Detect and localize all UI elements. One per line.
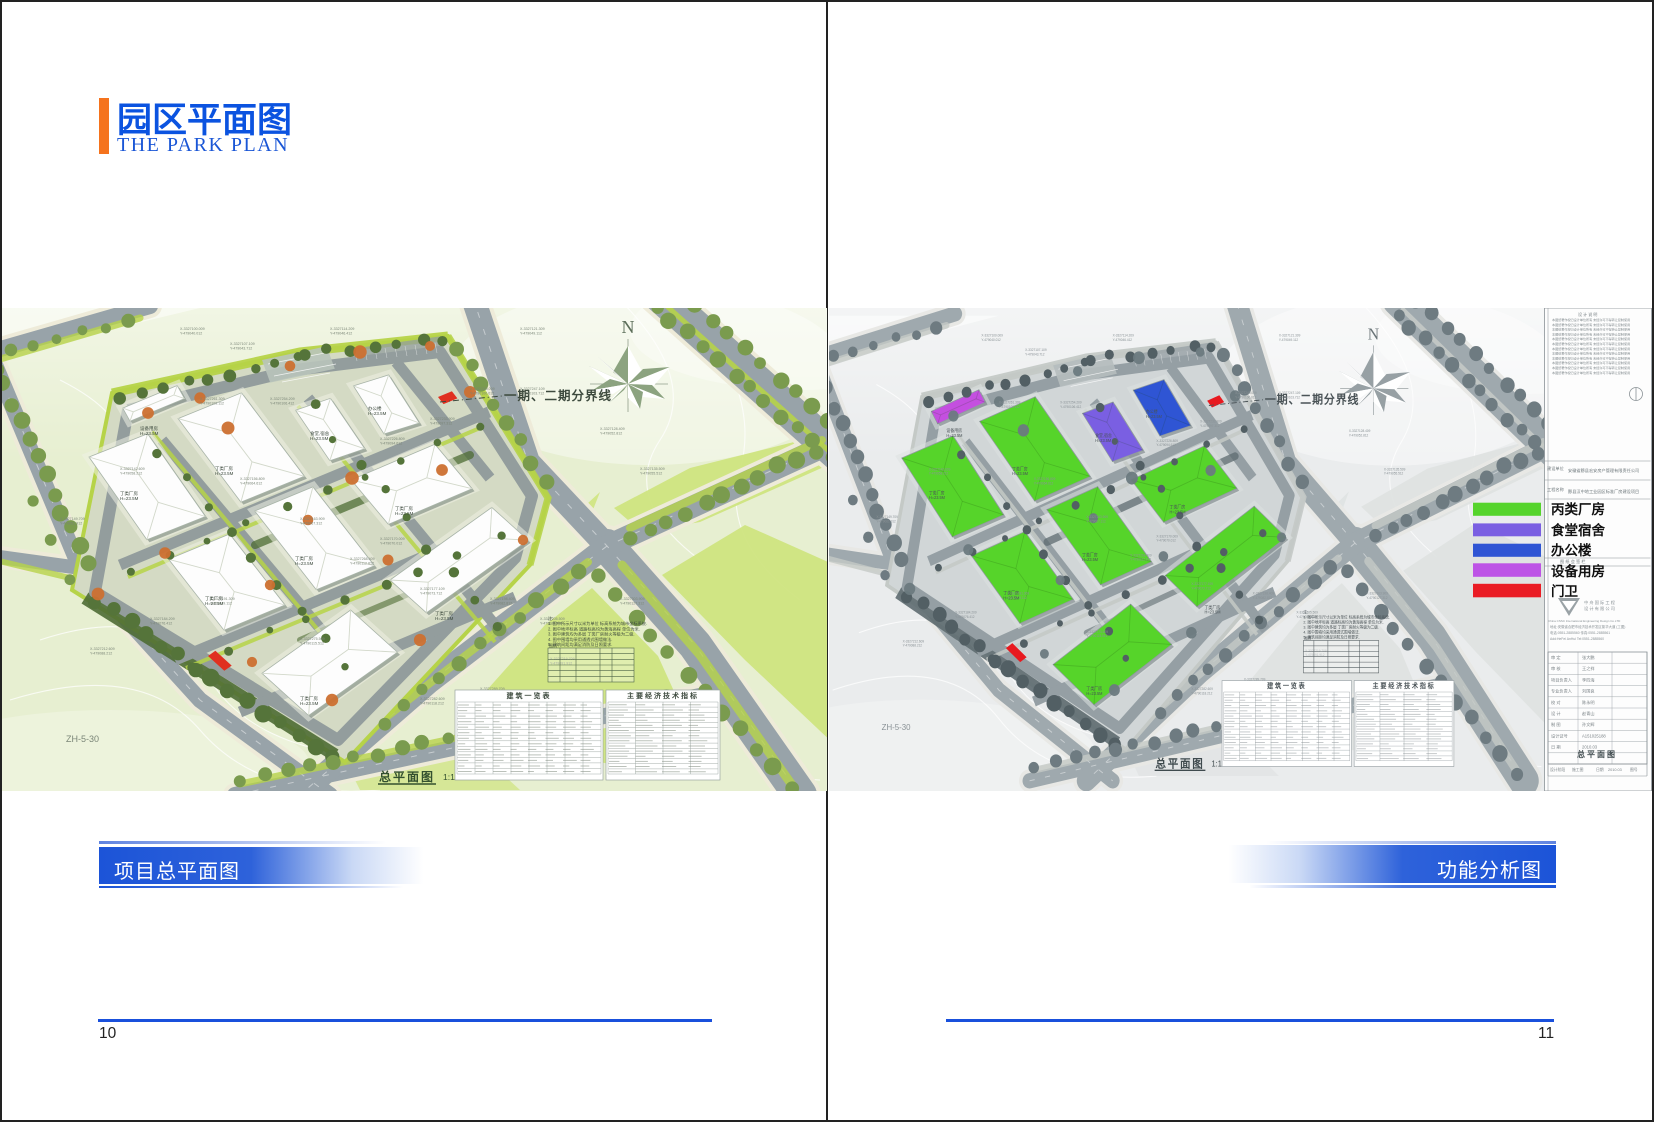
svg-text:本图纸著作权归设计单位所有 未经许可不得转让复制使用: 本图纸著作权归设计单位所有 未经许可不得转让复制使用 bbox=[1552, 327, 1630, 332]
svg-text:建设单位: 建设单位 bbox=[1547, 465, 1564, 472]
svg-text:本图纸著作权归设计单位所有 未经许可不得转让复制使用: 本图纸著作权归设计单位所有 未经许可不得转让复制使用 bbox=[1552, 317, 1630, 322]
svg-text:校 对: 校 对 bbox=[1551, 699, 1561, 706]
svg-text:项目负责人: 项目负责人 bbox=[1551, 676, 1573, 683]
svg-text:A151025188: A151025188 bbox=[1582, 733, 1606, 738]
svg-text:施工图: 施工图 bbox=[1572, 767, 1584, 772]
svg-text:陈永明: 陈永明 bbox=[1582, 699, 1595, 706]
svg-text:地址:安徽省合肥市经济技术开发区繁华大道 (工图): 地址:安徽省合肥市经济技术开发区繁华大道 (工图) bbox=[1550, 624, 1625, 629]
svg-text:张大鹏: 张大鹏 bbox=[1582, 654, 1595, 661]
svg-text:本图纸著作权归设计单位所有 未经许可不得转让复制使用: 本图纸著作权归设计单位所有 未经许可不得转让复制使用 bbox=[1552, 341, 1630, 346]
svg-text:审 核: 审 核 bbox=[1551, 665, 1561, 672]
svg-text:设 计 说 明: 设 计 说 明 bbox=[1578, 311, 1597, 317]
svg-text:Add:HeFei AnHui Tel:0551-28855: Add:HeFei AnHui Tel:0551-2885560 bbox=[1550, 637, 1604, 641]
svg-text:审 定: 审 定 bbox=[1551, 654, 1561, 661]
svg-text:设 计 有 限 公 司: 设 计 有 限 公 司 bbox=[1584, 605, 1615, 612]
svg-text:中 舟 国 际 工 程: 中 舟 国 际 工 程 bbox=[1584, 599, 1616, 606]
svg-text:设 计: 设 计 bbox=[1551, 710, 1561, 717]
svg-text:本图纸著作权归设计单位所有 未经许可不得转让复制使用: 本图纸著作权归设计单位所有 未经许可不得转让复制使用 bbox=[1552, 370, 1630, 375]
svg-text:总平面图: 总平面图 bbox=[1577, 749, 1617, 759]
svg-text:2010.03: 2010.03 bbox=[1608, 768, 1622, 772]
svg-text:办公楼: 办公楼 bbox=[1551, 542, 1592, 558]
svg-text:设备用房: 设备用房 bbox=[1551, 563, 1605, 579]
svg-text:制 图: 制 图 bbox=[1551, 721, 1561, 728]
svg-text:日期: 日期 bbox=[1596, 767, 1604, 772]
svg-text:本图纸著作权归设计单位所有 未经许可不得转让复制使用: 本图纸著作权归设计单位所有 未经许可不得转让复制使用 bbox=[1552, 336, 1630, 341]
svg-text:本图纸著作权归设计单位所有 未经许可不得转让复制使用: 本图纸著作权归设计单位所有 未经许可不得转让复制使用 bbox=[1552, 346, 1630, 351]
svg-text:本图纸著作权归设计单位所有 未经许可不得转让复制使用: 本图纸著作权归设计单位所有 未经许可不得转让复制使用 bbox=[1552, 365, 1630, 370]
svg-text:本图纸著作权归设计单位所有 未经许可不得转让复制使用: 本图纸著作权归设计单位所有 未经许可不得转让复制使用 bbox=[1552, 322, 1630, 327]
svg-text:食堂宿舍: 食堂宿舍 bbox=[1551, 522, 1605, 538]
svg-text:2010.03: 2010.03 bbox=[1582, 745, 1598, 750]
svg-text:孙文辉: 孙文辉 bbox=[1582, 721, 1595, 728]
svg-text:电话:0551-2885560 传真:0551-288556: 电话:0551-2885560 传真:0551-2885561 bbox=[1550, 630, 1610, 635]
svg-text:安徽省黟县宏安房产管理有限责任公司: 安徽省黟县宏安房产管理有限责任公司 bbox=[1568, 467, 1639, 474]
svg-text:王之祥: 王之祥 bbox=[1582, 665, 1595, 672]
svg-text:专业负责人: 专业负责人 bbox=[1551, 688, 1573, 695]
svg-text:China CSSC International Engin: China CSSC International Engineering Des… bbox=[1548, 619, 1621, 623]
svg-text:图号: 图号 bbox=[1630, 767, 1638, 772]
svg-text:本图纸著作权归设计单位所有 未经许可不得转让复制使用: 本图纸著作权归设计单位所有 未经许可不得转让复制使用 bbox=[1552, 331, 1630, 336]
svg-text:刘国良: 刘国良 bbox=[1582, 688, 1595, 695]
svg-text:本图纸著作权归设计单位所有 未经许可不得转让复制使用: 本图纸著作权归设计单位所有 未经许可不得转让复制使用 bbox=[1552, 355, 1630, 360]
svg-text:工程名称: 工程名称 bbox=[1547, 486, 1564, 493]
svg-text:黟县汉中地工业园区标准厂房建设项目: 黟县汉中地工业园区标准厂房建设项目 bbox=[1568, 488, 1639, 495]
svg-text:设计证号: 设计证号 bbox=[1551, 732, 1568, 739]
svg-text:门卫: 门卫 bbox=[1551, 583, 1579, 599]
svg-text:李四海: 李四海 bbox=[1582, 676, 1595, 683]
svg-text:设计阶段: 设计阶段 bbox=[1550, 767, 1565, 772]
svg-text:丙类厂房: 丙类厂房 bbox=[1551, 501, 1605, 517]
svg-text:本图纸著作权归设计单位所有 未经许可不得转让复制使用: 本图纸著作权归设计单位所有 未经许可不得转让复制使用 bbox=[1552, 351, 1630, 356]
svg-text:本图纸著作权归设计单位所有 未经许可不得转让复制使用: 本图纸著作权归设计单位所有 未经许可不得转让复制使用 bbox=[1552, 360, 1630, 365]
svg-text:赵青山: 赵青山 bbox=[1582, 710, 1595, 717]
